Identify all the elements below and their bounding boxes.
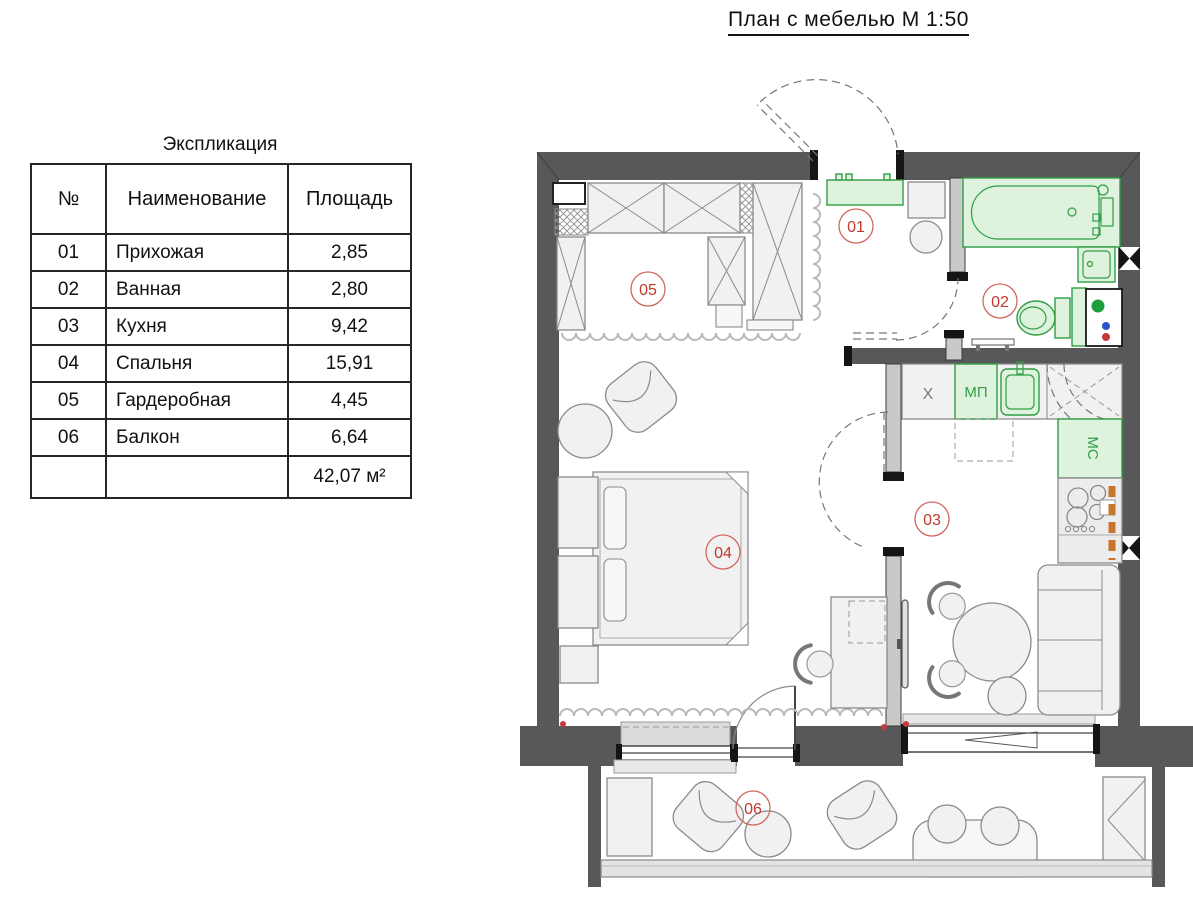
pouf [988, 677, 1026, 715]
svg-text:04: 04 [714, 545, 732, 562]
closet-unit [557, 237, 585, 330]
desk [831, 597, 887, 708]
hatched-box [740, 183, 753, 233]
outlet-marker [903, 721, 909, 727]
armchair [667, 776, 750, 858]
removed-wall-dashes [853, 333, 897, 339]
closet-unit [753, 183, 802, 320]
hatched-box [555, 209, 588, 235]
kitchen-window [901, 714, 1100, 754]
door-swing-arc [733, 686, 795, 749]
balcony-left-wall [588, 766, 601, 887]
room-04-bedroom [558, 356, 908, 708]
room-label-05: 05 [631, 272, 665, 306]
shelf [747, 320, 793, 330]
shaft-dot-blue [1102, 322, 1110, 330]
entry-door-swing [757, 80, 898, 161]
fridge-label: Х [923, 386, 934, 403]
washing-machine-label: МС [1084, 436, 1101, 459]
kitchen-sink [1001, 362, 1039, 415]
balcony-glazing [601, 860, 1152, 877]
shaft-dot-red [1102, 333, 1110, 341]
svg-text:06: 06 [744, 801, 762, 818]
drawer-box [716, 305, 742, 327]
balcony-cabinet [1103, 777, 1145, 864]
nightstand [558, 556, 598, 628]
svg-text:05: 05 [639, 282, 657, 299]
bath-cabinet [1072, 288, 1086, 346]
dishwasher-label: МП [964, 384, 987, 401]
dresser [560, 646, 598, 683]
hall-cabinet [908, 182, 945, 218]
armchair [822, 775, 903, 855]
outlet-marker [881, 724, 887, 730]
closet-unit [664, 183, 740, 233]
kitchen-door-swing [819, 412, 888, 548]
room-05-wardrobe [553, 183, 802, 330]
shoe-bench [827, 180, 903, 205]
closet-unit [588, 183, 664, 233]
washing-machine: МС [1058, 419, 1122, 478]
room-label-03: 03 [915, 502, 949, 536]
vent-shaft-icon [1119, 247, 1140, 270]
room-label-02: 02 [983, 284, 1017, 318]
utility-shaft [1086, 289, 1122, 346]
balcony-door [731, 686, 800, 762]
room-06-balcony [601, 775, 1152, 877]
entry-door-jamb [896, 150, 904, 180]
floor-plan-drawing: Х МП МС [0, 0, 1193, 904]
svg-text:02: 02 [991, 294, 1009, 311]
toilet [1017, 298, 1070, 338]
room-label-01: 01 [839, 209, 873, 243]
floor-plan-sheet: План с мебелью М 1:50 Экспликация № Наим… [0, 0, 1193, 904]
balcony-table [607, 778, 652, 856]
sofa [1038, 565, 1120, 715]
svg-text:03: 03 [923, 512, 941, 529]
shaft-dot-green [1092, 300, 1105, 313]
wall-niche [553, 183, 585, 204]
svg-text:01: 01 [847, 219, 865, 236]
bathtub [963, 178, 1120, 247]
bath-sink [1078, 247, 1115, 282]
balcony-right-wall [1152, 766, 1165, 887]
wardrobe-scallop-right [813, 194, 820, 320]
pillow [604, 487, 626, 549]
pouf [910, 221, 942, 253]
nightstand [558, 477, 598, 548]
wardrobe-scallop-bottom [562, 333, 800, 340]
pouf [558, 404, 612, 458]
facade-scallop [560, 709, 882, 716]
dishwasher: МП [955, 364, 997, 419]
outlet-marker [560, 721, 566, 727]
bedroom-window [614, 722, 736, 773]
pillow [604, 559, 626, 621]
upper-cabinet-dashed [955, 419, 1013, 461]
desk-chair [795, 645, 833, 682]
closet-unit [708, 237, 745, 305]
